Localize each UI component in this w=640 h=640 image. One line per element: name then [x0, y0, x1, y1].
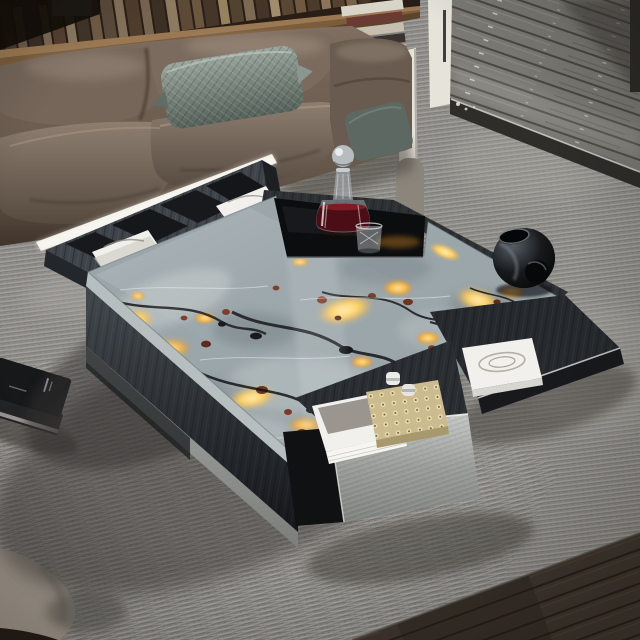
vignette: [0, 0, 640, 640]
living-room-scene: [0, 0, 640, 640]
product-photo: [0, 0, 640, 640]
